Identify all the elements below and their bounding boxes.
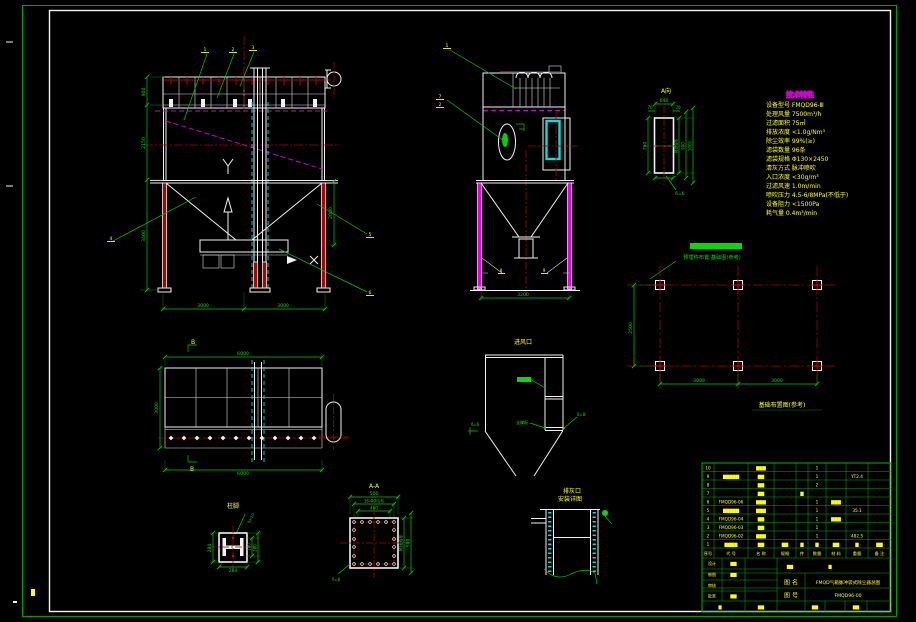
balloon-label: 9 bbox=[543, 268, 546, 273]
bom-header-cell: 重量 bbox=[853, 550, 861, 557]
bom-header-cell: 件 bbox=[800, 550, 804, 557]
support-leg bbox=[322, 183, 326, 288]
drawing-number-label: 图 号 bbox=[784, 593, 798, 600]
detail-title: 排灰口 bbox=[563, 487, 581, 495]
bom-header-cell: 规格 bbox=[781, 550, 790, 557]
dim-label: 3400 bbox=[141, 230, 147, 242]
dim-label: 70 bbox=[647, 105, 653, 110]
drawing-canvas: 900 2150 3400 2000 3000 3000 1 2 3 4 5 6… bbox=[0, 0, 916, 622]
part-label: 支撑板 bbox=[516, 419, 528, 425]
plan-caption: 基础布置图(参考) bbox=[759, 401, 806, 409]
titleblock-role: 制图 bbox=[708, 571, 716, 577]
dim-label: 500 bbox=[370, 491, 379, 497]
detail-title: 柱脚 bbox=[227, 502, 239, 510]
bom-header-cell: 名 称 bbox=[756, 550, 766, 557]
titleblock-bit: ▇▇ bbox=[811, 605, 819, 610]
spec-line: 设备型号 FMQD96-Ⅲ bbox=[766, 101, 824, 109]
section-mark: B bbox=[190, 466, 194, 473]
bom-header-cell: 代 号 bbox=[726, 550, 736, 557]
titleblock-role: 审核 bbox=[708, 582, 716, 588]
spec-line: 设备阻力 <1500Pa bbox=[766, 200, 820, 208]
bom-header-cell: 序号 bbox=[704, 550, 712, 557]
dim-label: 16-Φ9均布 bbox=[364, 498, 384, 504]
dim-label: 6000 bbox=[237, 351, 249, 357]
bom-cell: FMQD96-04 bbox=[719, 516, 744, 521]
drawing-name-value: FMQD气箱脉冲袋式除尘器总图 bbox=[816, 579, 881, 586]
section-mark: B bbox=[191, 339, 195, 346]
bom-cell: YT2.4 bbox=[850, 474, 863, 479]
spec-line: 入口浓度 <30g/m³ bbox=[766, 173, 819, 181]
bom-cell: 1 bbox=[816, 499, 819, 504]
dim-label: 180 bbox=[247, 543, 252, 551]
spec-line: 滤袋数量 96条 bbox=[766, 146, 806, 154]
dim-label: 460 bbox=[370, 506, 378, 511]
detail-title: 安装详图 bbox=[558, 495, 582, 503]
dim-label: 70 bbox=[675, 105, 681, 110]
cad-drawing-sheet: 900 2150 3400 2000 3000 3000 1 2 3 4 5 6… bbox=[0, 0, 916, 622]
spec-line: 耗气量 0.4m³/min bbox=[766, 209, 817, 217]
bom-cell: 1 bbox=[816, 533, 819, 538]
titleblock-role: 设计 bbox=[708, 560, 716, 566]
dim-label: 900 bbox=[141, 88, 147, 97]
note-label: δ=6 bbox=[675, 191, 685, 197]
dim-label: 3000 bbox=[197, 303, 209, 309]
support-leg bbox=[163, 183, 167, 288]
spec-line: 过滤面积 75㎡ bbox=[766, 119, 806, 127]
bom-cell: 482.5 bbox=[851, 533, 863, 538]
bom-cell: FMQD96-06 bbox=[719, 499, 744, 504]
dim-label: 640 bbox=[660, 98, 669, 104]
highlight-bar bbox=[517, 377, 531, 382]
detail-title: A向 bbox=[661, 87, 671, 95]
bom-header-cell: 备 注 bbox=[875, 550, 886, 557]
spec-line: 滤袋规格 Φ130×2450 bbox=[766, 155, 829, 163]
bom-cell: 9 bbox=[707, 474, 710, 479]
bom-cell: 10 bbox=[705, 465, 711, 470]
dim-label: 3200 bbox=[517, 292, 529, 298]
dim-label: M8均布 bbox=[673, 139, 679, 153]
support-leg bbox=[478, 183, 482, 289]
titleblock-name: ▇▇ bbox=[729, 572, 737, 577]
dim-label: 3000 bbox=[771, 378, 783, 384]
titleblock-extra: ▇▇ bbox=[786, 564, 794, 569]
spec-line: 处理风量 7500m³/h bbox=[766, 110, 821, 118]
balloon-label: 8 bbox=[500, 268, 503, 273]
plan-label: 预埋件布置 基础图(参考) bbox=[683, 253, 741, 261]
dim-label: 2500 bbox=[628, 322, 634, 334]
corner-mark bbox=[13, 601, 17, 603]
bom-cell: 1 bbox=[707, 542, 710, 547]
dim-label: 3000 bbox=[154, 402, 160, 414]
bom-cell: FMQD96-02 bbox=[719, 533, 744, 538]
bom-cell: 2 bbox=[707, 533, 710, 538]
bom-cell: 4 bbox=[707, 516, 710, 521]
leader-dot bbox=[602, 510, 608, 516]
dim-label: 900 bbox=[681, 142, 686, 150]
dim-label: 790 bbox=[643, 142, 649, 151]
dim-label: 6000 bbox=[237, 471, 249, 477]
spec-line: 清灰方式 脉冲喷吹 bbox=[766, 164, 816, 172]
sheet-frame bbox=[0, 0, 916, 622]
bom-cell: 1 bbox=[816, 516, 819, 521]
bom-cell: 6 bbox=[707, 499, 710, 504]
dim-label: 1000 bbox=[688, 140, 693, 151]
bom-cell: 1 bbox=[816, 525, 819, 530]
bom-cell: 7 bbox=[707, 491, 710, 496]
dim-label: 500 bbox=[406, 539, 412, 548]
bom-cell: 5 bbox=[707, 508, 710, 513]
bom-cell: 35.1 bbox=[852, 508, 862, 513]
dim-label: 280 bbox=[229, 568, 238, 574]
dim-label: 280 bbox=[207, 544, 213, 553]
dim-label: 3000 bbox=[277, 303, 289, 309]
bom-header-cell: 数量 bbox=[813, 550, 821, 557]
dim-label: M16均布 bbox=[398, 535, 404, 552]
dim-label: 2000 bbox=[328, 207, 334, 219]
dim-label: 3000 bbox=[693, 378, 705, 384]
bom-cell: 3 bbox=[707, 525, 710, 530]
titleblock-bit: ▇▇ bbox=[757, 605, 765, 610]
titleblock-role: 批准 bbox=[708, 593, 716, 599]
dim-label: 2150 bbox=[141, 137, 147, 149]
bom-cell: FMQD96-03 bbox=[719, 525, 744, 530]
drawing-number-value: FMQD96-00 bbox=[834, 593, 861, 599]
spec-title: 技术特性 bbox=[786, 90, 814, 99]
spec-line: 喷吹压力 4.5-6/8MPa(不低于) bbox=[766, 191, 848, 199]
bom-cell: 8 bbox=[707, 482, 710, 487]
corner-mark bbox=[31, 589, 35, 596]
part-label: δ=6 bbox=[471, 422, 480, 427]
titleblock-name: ▇▇ bbox=[729, 561, 737, 566]
titleblock-bit: ▇▇ bbox=[852, 605, 860, 610]
spec-line: 除尘效率 99%(≥) bbox=[766, 137, 815, 145]
detail-title: 进风口 bbox=[514, 338, 532, 346]
detail-title: A-A bbox=[369, 483, 380, 490]
bom-header-cell: 材 料 bbox=[831, 550, 842, 557]
highlight-bar bbox=[690, 243, 742, 249]
dim-label: 280 bbox=[253, 544, 258, 552]
bom-cell: 1 bbox=[816, 465, 819, 470]
spec-line: 排放浓度 <1.0g/Nm³ bbox=[766, 128, 826, 136]
note-label: δ=8 bbox=[332, 577, 341, 582]
part-label: δ=8 bbox=[577, 412, 586, 417]
spec-line: 过滤风速 1.0m/min bbox=[766, 182, 821, 190]
bom-cell: 2 bbox=[816, 482, 819, 487]
bom-cell: 1 bbox=[816, 474, 819, 479]
drawing-name-label: 图 名 bbox=[784, 579, 798, 587]
titleblock-name: ▇▇ bbox=[729, 594, 737, 599]
bom-cell: 1 bbox=[816, 508, 819, 513]
